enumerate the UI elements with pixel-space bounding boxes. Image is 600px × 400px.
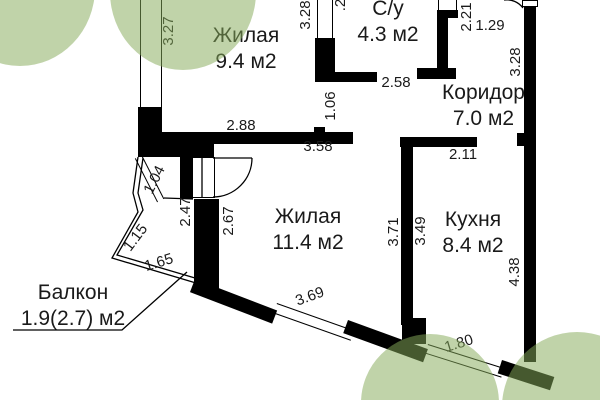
tree-top-left-small [0,0,95,66]
room-area: 11.4 м2 [258,230,358,256]
wall-facade-diagonal-1 [190,279,277,324]
dim-room114-right-wall: 3.71 [386,197,402,267]
dim-room114-left-wall: 2.67 [221,186,237,256]
wall-building-right [524,4,536,362]
balcony-door-opening [192,157,215,198]
entry-door-arc [504,0,523,8]
window-su-left [317,0,333,39]
wall-su-right [437,18,448,70]
room-name: Жилая [258,204,358,230]
room-label-living-94: Жилая 9.4 м2 [196,23,296,75]
dim-entrance-opening: 1.06 [323,71,339,141]
room-label-living-114: Жилая 11.4 м2 [258,204,358,256]
wall-kitchen-door-nub [517,133,525,146]
dim-su-width: 2.58 [361,75,431,91]
room-label-bathroom: С/у 4.3 м2 [338,0,438,48]
room-name: Жилая [196,23,296,49]
window-room94-left [140,0,162,108]
room-name: Балкон [12,280,134,306]
room-area: 4.3 м2 [338,22,438,48]
dim-room94-left-height: 3.27 [161,0,177,66]
room-name: Коридор [431,80,536,106]
floor-plan: 3.27 3.28 .2 1.06 2.21 1.29 3.28 2.47 2.… [0,0,600,400]
wall-room114-left [194,199,219,293]
dim-room114-top-width: 3.58 [283,139,353,155]
dim-su-left-wall: 3.28 [298,0,314,50]
dim-balcony-wall-outer: 2.47 [178,177,194,247]
room-name: Кухня [423,207,523,233]
dim-room94-width: 2.88 [206,118,276,134]
wall-room94-left-corner [138,107,162,157]
room-label-corridor: Коридор 7.0 м2 [431,80,536,132]
room-area: 1.9(2.7) м2 [12,306,134,332]
room-area: 9.4 м2 [196,49,296,75]
room-area: 8.4 м2 [423,233,523,259]
room-area: 7.0 м2 [431,106,536,132]
room-label-balcony: Балкон 1.9(2.7) м2 [12,280,134,332]
wall-facade-diagonal-3 [498,360,555,390]
wall-su-right-top [437,10,458,18]
dim-kitchen-door-width: 2.11 [428,147,498,163]
entry-door-leaf [522,0,538,7]
room-name: С/у [338,0,438,22]
room-label-kitchen: Кухня 8.4 м2 [423,207,523,259]
window-su-right [438,0,457,10]
dim-room114-facade: 3.69 [274,278,345,317]
